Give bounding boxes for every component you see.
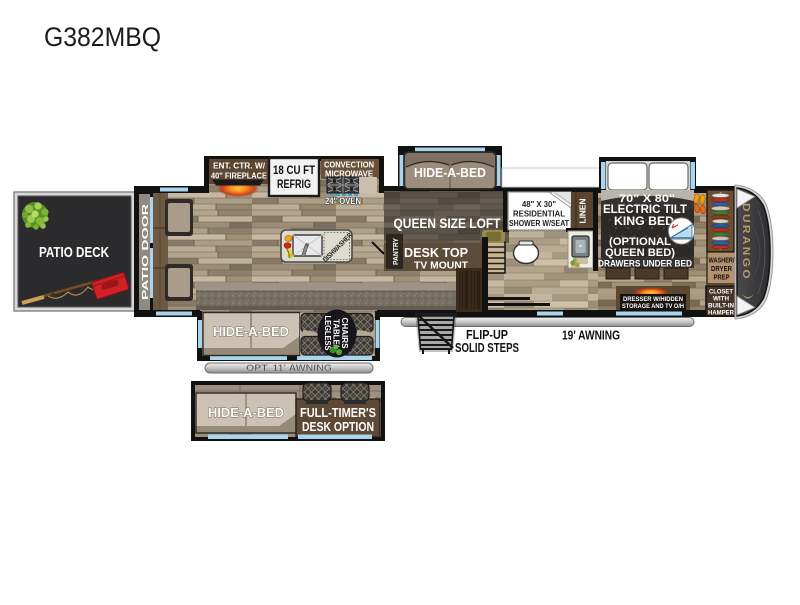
svg-text:DURANGO: DURANGO [740,203,751,281]
svg-text:DESK TOP: DESK TOP [404,245,468,260]
svg-text:HIDE-A-BED: HIDE-A-BED [414,166,486,180]
svg-text:FULL-TIMER'S: FULL-TIMER'S [300,406,376,420]
svg-text:QUEEN BED): QUEEN BED) [605,247,675,259]
svg-text:LINEN: LINEN [578,199,588,224]
svg-text:ELECTRIC TILT: ELECTRIC TILT [603,204,687,216]
svg-text:SOLID STEPS: SOLID STEPS [455,340,519,355]
svg-text:CONVECTION: CONVECTION [324,161,374,170]
svg-text:CHAIRS: CHAIRS [340,318,350,349]
svg-text:CLOSET: CLOSET [709,289,733,296]
svg-text:ENT. CTR. W/: ENT. CTR. W/ [213,162,266,171]
svg-text:PANTRY: PANTRY [391,238,400,265]
svg-text:40" FIREPLACE: 40" FIREPLACE [211,172,268,181]
svg-text:KING BED: KING BED [614,216,674,228]
svg-text:WASHER/: WASHER/ [709,258,735,265]
svg-text:LEGLESS: LEGLESS [323,316,333,351]
svg-text:REFRIG: REFRIG [277,177,311,191]
svg-text:DESK OPTION: DESK OPTION [302,420,374,434]
svg-text:DRAWERS UNDER BED: DRAWERS UNDER BED [598,259,692,270]
svg-text:19' AWNING: 19' AWNING [562,328,620,343]
svg-text:WITH: WITH [713,296,729,303]
svg-text:PATIO DOOR: PATIO DOOR [140,204,150,300]
svg-text:QUEEN SIZE LOFT: QUEEN SIZE LOFT [394,216,502,231]
svg-text:HIDE-A-BED: HIDE-A-BED [208,406,284,420]
svg-text:DRESSER W/HIDDEN: DRESSER W/HIDDEN [623,296,683,303]
svg-text:TABLE/: TABLE/ [332,319,342,348]
svg-text:SHOWER W/SEAT: SHOWER W/SEAT [509,218,570,228]
svg-text:DRYER: DRYER [711,266,732,273]
svg-text:OPT. 11' AWNING: OPT. 11' AWNING [246,363,332,374]
svg-text:BUILT-IN: BUILT-IN [708,303,734,310]
svg-text:48" X 30": 48" X 30" [522,199,556,209]
svg-text:18 CU FT: 18 CU FT [273,163,316,177]
svg-text:G382MBQ: G382MBQ [44,22,161,52]
svg-text:HAMPER: HAMPER [708,310,734,317]
svg-text:STORAGE AND TV O/H: STORAGE AND TV O/H [622,303,684,310]
svg-text:24" OVEN: 24" OVEN [325,196,361,207]
svg-text:RESIDENTIAL: RESIDENTIAL [513,209,565,219]
svg-text:HIDE-A-BED: HIDE-A-BED [213,325,289,339]
svg-text:PATIO DECK: PATIO DECK [39,244,109,261]
svg-text:PREP: PREP [714,275,730,282]
